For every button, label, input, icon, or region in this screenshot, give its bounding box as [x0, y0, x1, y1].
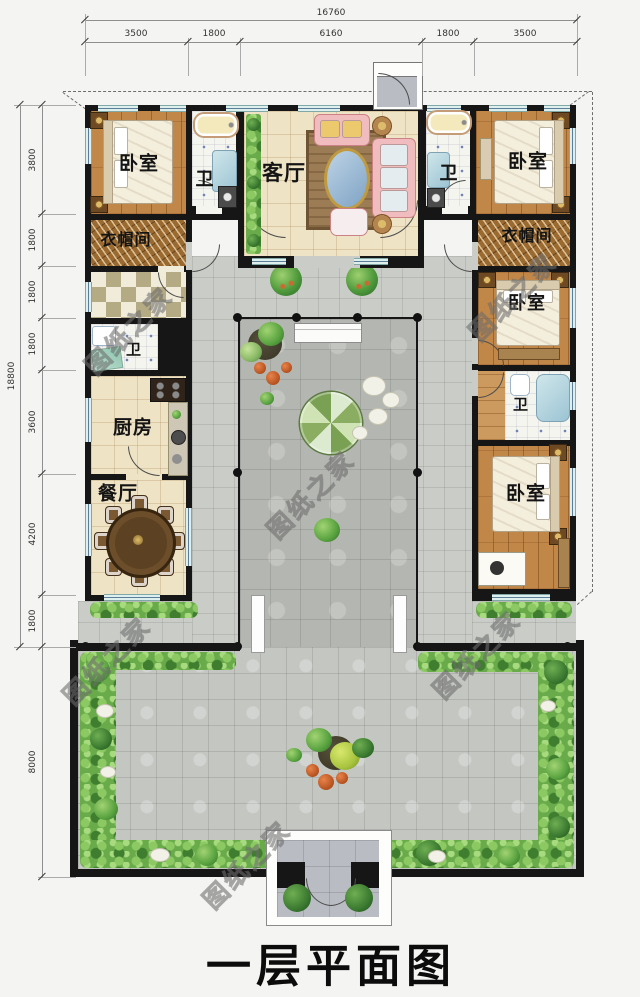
- shrub: [94, 798, 118, 820]
- shrub: [546, 758, 570, 780]
- room-label-bedroom-nw: 卧室: [119, 149, 159, 176]
- shrub: [314, 518, 340, 542]
- dim-value: 8000: [28, 751, 38, 774]
- stepping-stone: [362, 376, 386, 396]
- room-label-living: 客厅: [262, 157, 306, 187]
- dim-value: 1800: [28, 333, 38, 356]
- dim-extension: [14, 647, 76, 648]
- walkway-pillar: [251, 595, 265, 653]
- dim-extension: [577, 14, 578, 76]
- sofa-cushion: [380, 144, 408, 166]
- shrub: [544, 660, 568, 684]
- dim-extension: [14, 105, 76, 106]
- garden-stone: [100, 766, 116, 778]
- room-label-bath-nw: 卫: [196, 165, 215, 191]
- window: [569, 288, 576, 328]
- room-label-cloak-west: 衣帽间: [100, 226, 151, 250]
- clay-pot: [254, 362, 266, 374]
- eave-dashed-corner-tl: [62, 92, 85, 109]
- bathtub: [426, 110, 472, 135]
- dim-line-top-total: [85, 20, 577, 21]
- nightstand: [478, 272, 496, 288]
- bench: [480, 138, 492, 180]
- courtyard-wall-east: [576, 640, 584, 877]
- garden-stone: [96, 704, 114, 718]
- window: [85, 504, 92, 556]
- dim-value: 3500: [514, 29, 537, 39]
- window: [98, 105, 138, 112]
- shrub: [90, 728, 112, 750]
- dim-extension: [38, 370, 76, 371]
- sofa-cushion: [320, 120, 340, 138]
- window: [492, 594, 550, 601]
- column: [233, 313, 242, 322]
- shrub: [196, 844, 218, 866]
- clay-pot: [266, 371, 280, 385]
- door-gap-cloak-east: [472, 242, 478, 270]
- column: [413, 313, 422, 322]
- bed-headboard: [103, 120, 113, 204]
- column: [233, 468, 242, 477]
- tree: [346, 264, 378, 296]
- shrub: [498, 846, 520, 866]
- floor-plan-page: 卧室 卫 客厅 卫 卧室 衣帽间 衣帽间 卫 厨房 餐厅 卧室 卫 卧室 图纸之…: [0, 0, 640, 997]
- column: [413, 468, 422, 477]
- dresser: [498, 348, 560, 360]
- dim-extension: [38, 214, 76, 215]
- window: [489, 105, 527, 112]
- dim-value: 3600: [28, 411, 38, 434]
- garden-stone: [428, 850, 446, 863]
- window: [85, 128, 92, 164]
- potted-palm: [247, 234, 260, 247]
- garden-strip: [90, 602, 198, 618]
- stepping-stone: [352, 426, 368, 440]
- eave-dashed-line-top: [63, 91, 592, 92]
- dim-extension: [422, 38, 423, 76]
- room-label-bedroom-ne: 卧室: [508, 147, 548, 174]
- dim-line-left-segments: [42, 105, 43, 877]
- shrub: [286, 748, 302, 762]
- window: [104, 594, 160, 601]
- ottoman: [330, 208, 368, 236]
- room-label-bath-east: 卫: [513, 394, 529, 415]
- column: [353, 313, 362, 322]
- room-label-bath-ne: 卫: [440, 159, 459, 185]
- dim-value: 1800: [203, 29, 226, 39]
- dim-extension: [38, 595, 76, 596]
- window: [354, 258, 388, 265]
- clay-pot: [318, 774, 334, 790]
- shrub: [548, 816, 570, 838]
- walkway-pillar: [393, 595, 407, 653]
- kitchen-bowl: [172, 454, 182, 464]
- clay-pot: [306, 764, 319, 777]
- sofa-cushion: [380, 167, 408, 189]
- garden-umbrella: [300, 392, 362, 454]
- dim-extension: [38, 877, 76, 878]
- room-label-dining: 餐厅: [98, 479, 138, 506]
- kitchen-plant: [172, 410, 181, 419]
- shrub: [352, 738, 374, 758]
- dim-value: 3800: [28, 149, 38, 172]
- garden-stone: [150, 848, 170, 862]
- dim-extension: [85, 14, 86, 76]
- sofa-cushion: [342, 120, 362, 138]
- stepping-stone: [368, 408, 388, 425]
- eave-dashed-line-right: [592, 92, 593, 592]
- dim-value: 1800: [437, 29, 460, 39]
- dim-value-top-total: 16760: [317, 8, 346, 18]
- dim-extension: [38, 474, 76, 475]
- stepping-stone: [382, 392, 400, 408]
- room-label-bedroom-se: 卧室: [506, 479, 546, 506]
- door-gap-bath-ne: [442, 206, 468, 214]
- room-label-cloak-east: 衣帽间: [501, 222, 552, 246]
- dim-line-top-segments: [85, 42, 577, 43]
- dim-extension: [38, 318, 76, 319]
- dim-value-left-total: 18800: [7, 362, 17, 391]
- dim-extension: [188, 38, 189, 76]
- window: [569, 468, 576, 516]
- side-table: [372, 214, 392, 234]
- plan-title: 一层平面图: [206, 930, 456, 995]
- window: [85, 282, 92, 312]
- window: [160, 105, 186, 112]
- bed-headboard: [550, 456, 560, 532]
- dim-extension: [240, 38, 241, 76]
- sofa-cushion: [380, 190, 408, 212]
- shower: [536, 374, 570, 422]
- shrub: [240, 342, 262, 362]
- column: [292, 313, 301, 322]
- window: [544, 105, 570, 112]
- dim-value: 6160: [320, 29, 343, 39]
- gate-shrub: [345, 884, 373, 912]
- window: [85, 398, 92, 442]
- room-label-kitchen: 厨房: [113, 413, 153, 440]
- shrub: [260, 392, 274, 405]
- tree: [270, 264, 302, 296]
- dim-value: 4200: [28, 523, 38, 546]
- desk-chair: [490, 561, 504, 575]
- dim-extension: [474, 38, 475, 76]
- inner-courtyard-step: [294, 323, 362, 343]
- side-table: [372, 116, 392, 136]
- clay-pot: [281, 362, 292, 373]
- dim-value: 1800: [28, 229, 38, 252]
- garden-stone: [540, 700, 556, 712]
- window: [298, 105, 340, 112]
- coffee-table: [324, 148, 370, 210]
- dim-value: 1800: [28, 610, 38, 633]
- window: [226, 105, 268, 112]
- dim-line-left-total: [20, 105, 21, 647]
- gate-shrub: [283, 884, 311, 912]
- dresser: [558, 538, 570, 588]
- window: [569, 128, 576, 164]
- bathtub: [193, 112, 239, 138]
- shrub: [306, 728, 332, 752]
- clay-pot: [336, 772, 348, 784]
- opening-living-to-courtyard: [294, 256, 360, 268]
- potted-palm: [247, 118, 260, 131]
- bed-headboard: [554, 120, 564, 204]
- dim-value: 1800: [28, 281, 38, 304]
- toilet: [427, 188, 445, 208]
- washing-machine: [218, 186, 237, 208]
- shrub: [258, 322, 284, 346]
- window: [252, 258, 286, 265]
- kitchen-sink: [171, 430, 186, 445]
- potted-palm: [247, 176, 260, 189]
- courtyard-wall-south-right: [388, 869, 584, 877]
- dim-value: 3500: [125, 29, 148, 39]
- stove: [150, 378, 186, 402]
- dining-table-center: [133, 535, 143, 545]
- window: [569, 382, 576, 410]
- window: [185, 508, 192, 566]
- dim-extension: [38, 266, 76, 267]
